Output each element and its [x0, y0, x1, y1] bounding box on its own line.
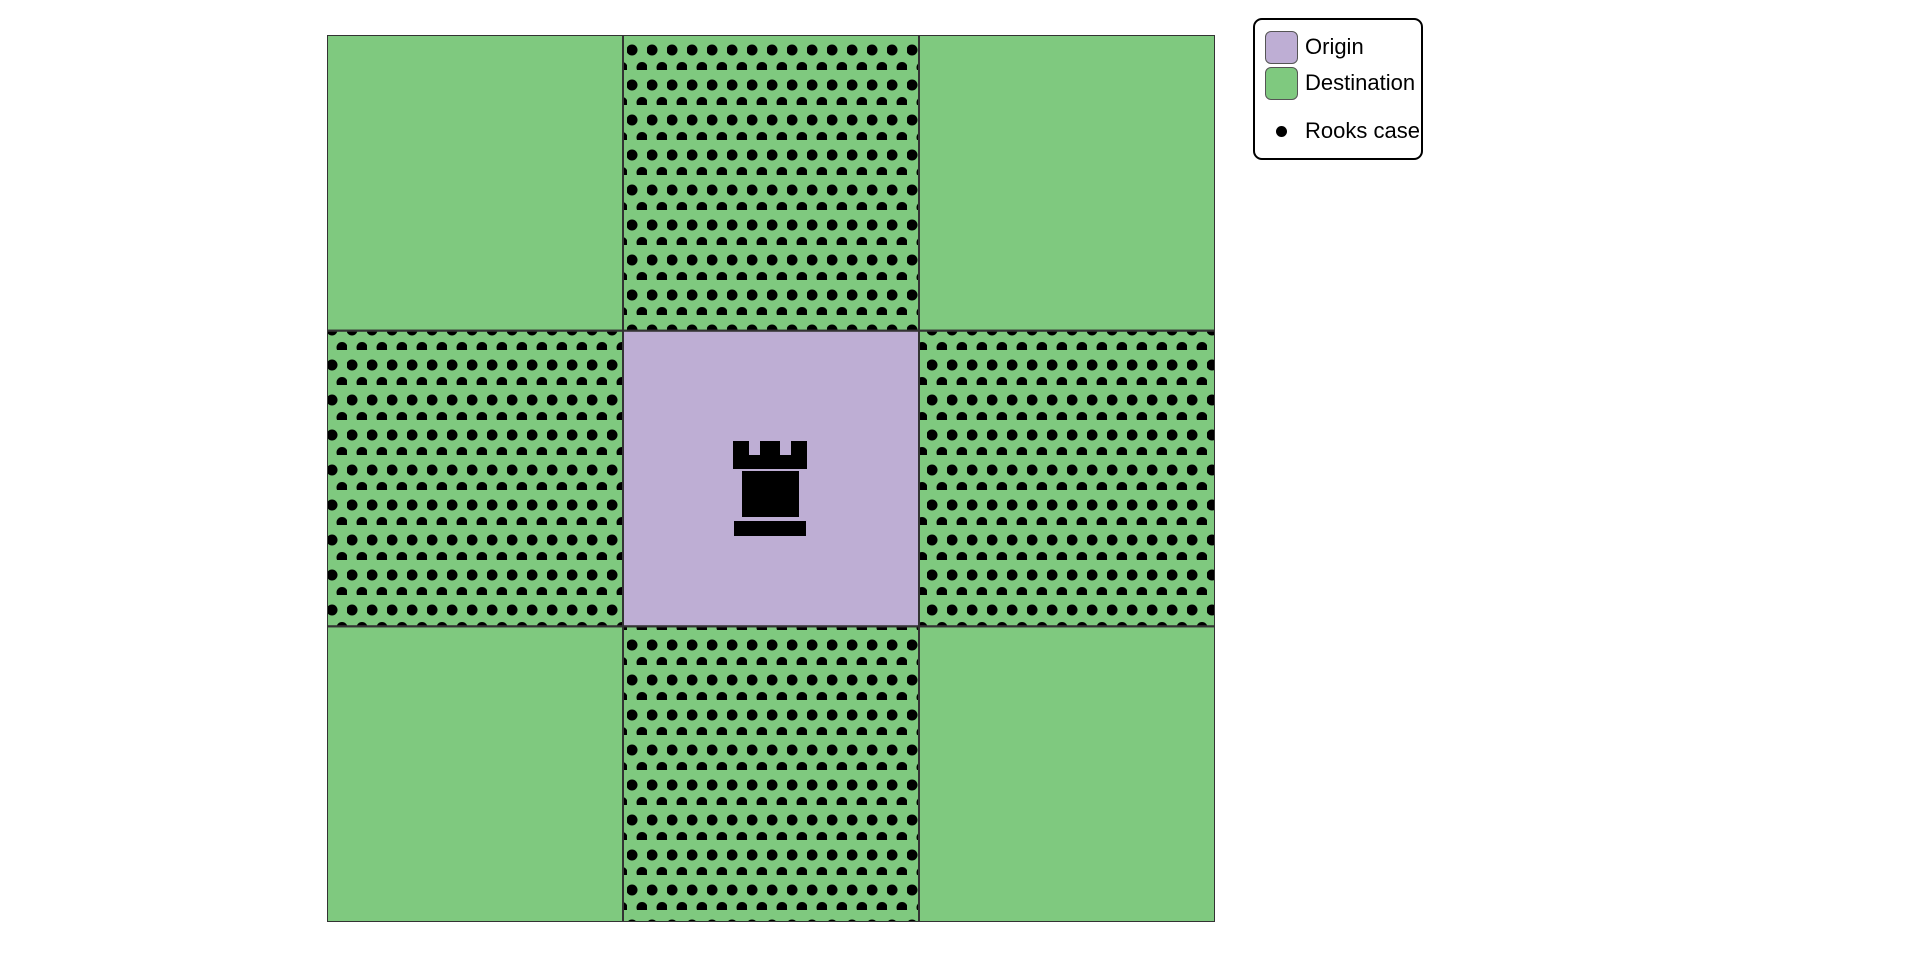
legend-label: Rooks case	[1305, 120, 1420, 144]
legend-label: Destination	[1305, 72, 1415, 96]
cell-r1-c0-rooks-case-hatch	[327, 331, 623, 627]
legend: OriginDestinationRooks case	[1253, 18, 1423, 160]
cell-r0-c1-rooks-case-hatch	[623, 35, 919, 331]
board-figure	[327, 35, 1215, 922]
rook-icon	[733, 441, 807, 536]
dot-icon	[1276, 126, 1287, 137]
figure-canvas: OriginDestinationRooks case	[0, 0, 1920, 960]
legend-label: Origin	[1305, 36, 1364, 60]
board-svg	[327, 35, 1215, 922]
cell-r2-c1-rooks-case-hatch	[623, 626, 919, 922]
cell-r2-c2-destination	[919, 626, 1215, 922]
cell-r1-c2-rooks-case-hatch	[919, 331, 1215, 627]
legend-item-origin: Origin	[1265, 31, 1413, 64]
legend-marker-box	[1265, 115, 1298, 148]
legend-swatch-origin	[1265, 31, 1298, 64]
legend-item-rooks-case: Rooks case	[1265, 115, 1413, 148]
legend-swatch-destination	[1265, 67, 1298, 100]
legend-item-destination: Destination	[1265, 67, 1413, 100]
cell-r0-c0-destination	[327, 35, 623, 331]
cell-r0-c2-destination	[919, 35, 1215, 331]
cell-r2-c0-destination	[327, 626, 623, 922]
